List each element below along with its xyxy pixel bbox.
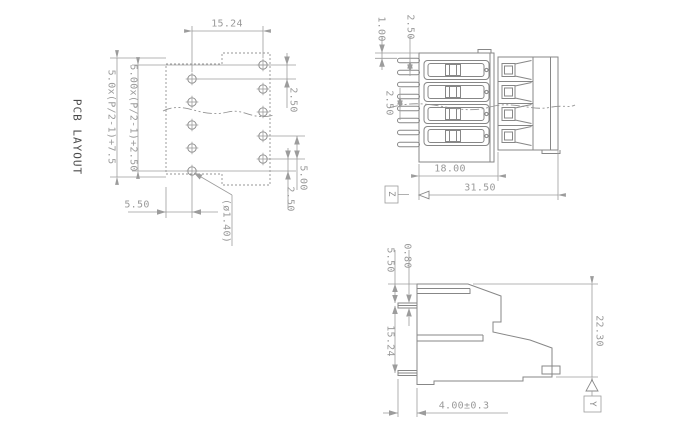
datum-mark-label: Y bbox=[587, 401, 597, 407]
dim-pin-thickness: 0.80 bbox=[402, 243, 413, 268]
technical-drawing-sheet: PCB LAYOUT 15.24 5.0x(P/2-1)+7.5 5.00x(P… bbox=[0, 0, 680, 440]
dim-pin-inset: 1.00 bbox=[376, 16, 387, 41]
dim-overall-height: 22.30 bbox=[594, 315, 605, 347]
end-plate bbox=[533, 57, 558, 150]
dim-row-offset-top: 2.50 bbox=[288, 87, 299, 112]
dim-pin-length: 4.00±0.3 bbox=[439, 401, 490, 412]
dim-edge-margin: 5.50 bbox=[124, 200, 149, 211]
footprint-outline bbox=[166, 53, 270, 185]
dim-pin-offset: 2.50 bbox=[405, 14, 416, 39]
pcb-layout-view bbox=[110, 26, 305, 246]
dim-row-offset-bottom: 2.50 bbox=[285, 186, 296, 211]
view-title-pcb-layout: PCB LAYOUT bbox=[71, 99, 84, 175]
dim-pin-spacing: 15.24 bbox=[385, 325, 396, 357]
drawing-linework bbox=[0, 0, 680, 440]
side-view bbox=[383, 250, 601, 417]
dim-overall-width: 31.50 bbox=[464, 183, 496, 194]
section-mark-label: Z bbox=[386, 191, 396, 197]
dim-column-spacing: 15.24 bbox=[211, 19, 243, 30]
dim-body-width: 18.00 bbox=[434, 164, 466, 175]
dim-span-formula-inner: 5.00x(P/2-1)+2.50 bbox=[128, 64, 139, 171]
dim-top-to-pin: 5.50 bbox=[385, 247, 396, 272]
side-profile bbox=[417, 284, 552, 385]
dim-hole-pitch: 5.00 bbox=[298, 165, 309, 190]
front-view bbox=[375, 36, 575, 203]
dim-span-formula-outer: 5.0x(P/2-1)+7.5 bbox=[106, 70, 117, 165]
dim-pin-pitch: 2.50 bbox=[384, 90, 395, 115]
latch-tab bbox=[542, 366, 560, 374]
dim-hole-diameter: (ø1.40) bbox=[221, 199, 232, 243]
